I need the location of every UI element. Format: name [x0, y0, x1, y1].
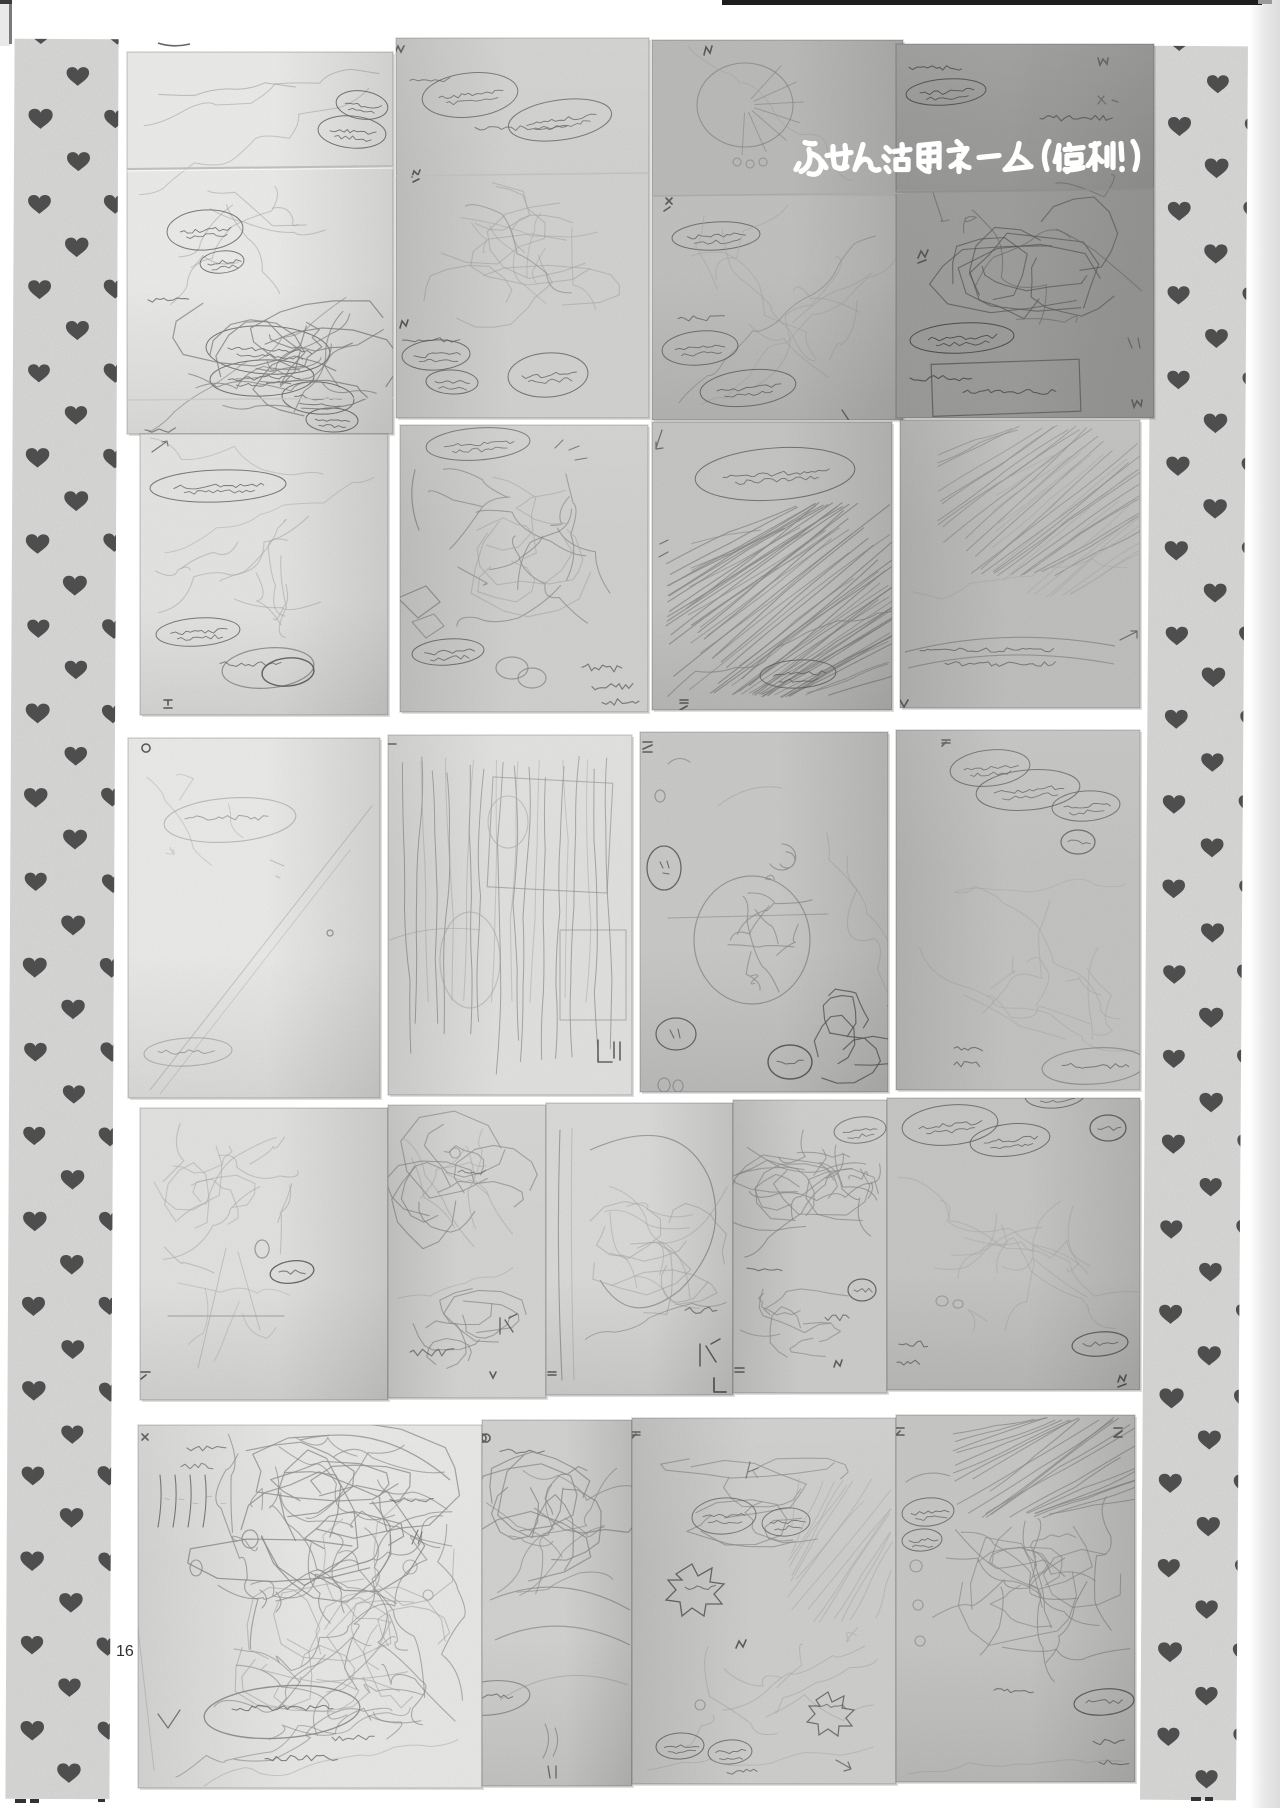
svg-text:16: 16 [116, 1643, 134, 1660]
